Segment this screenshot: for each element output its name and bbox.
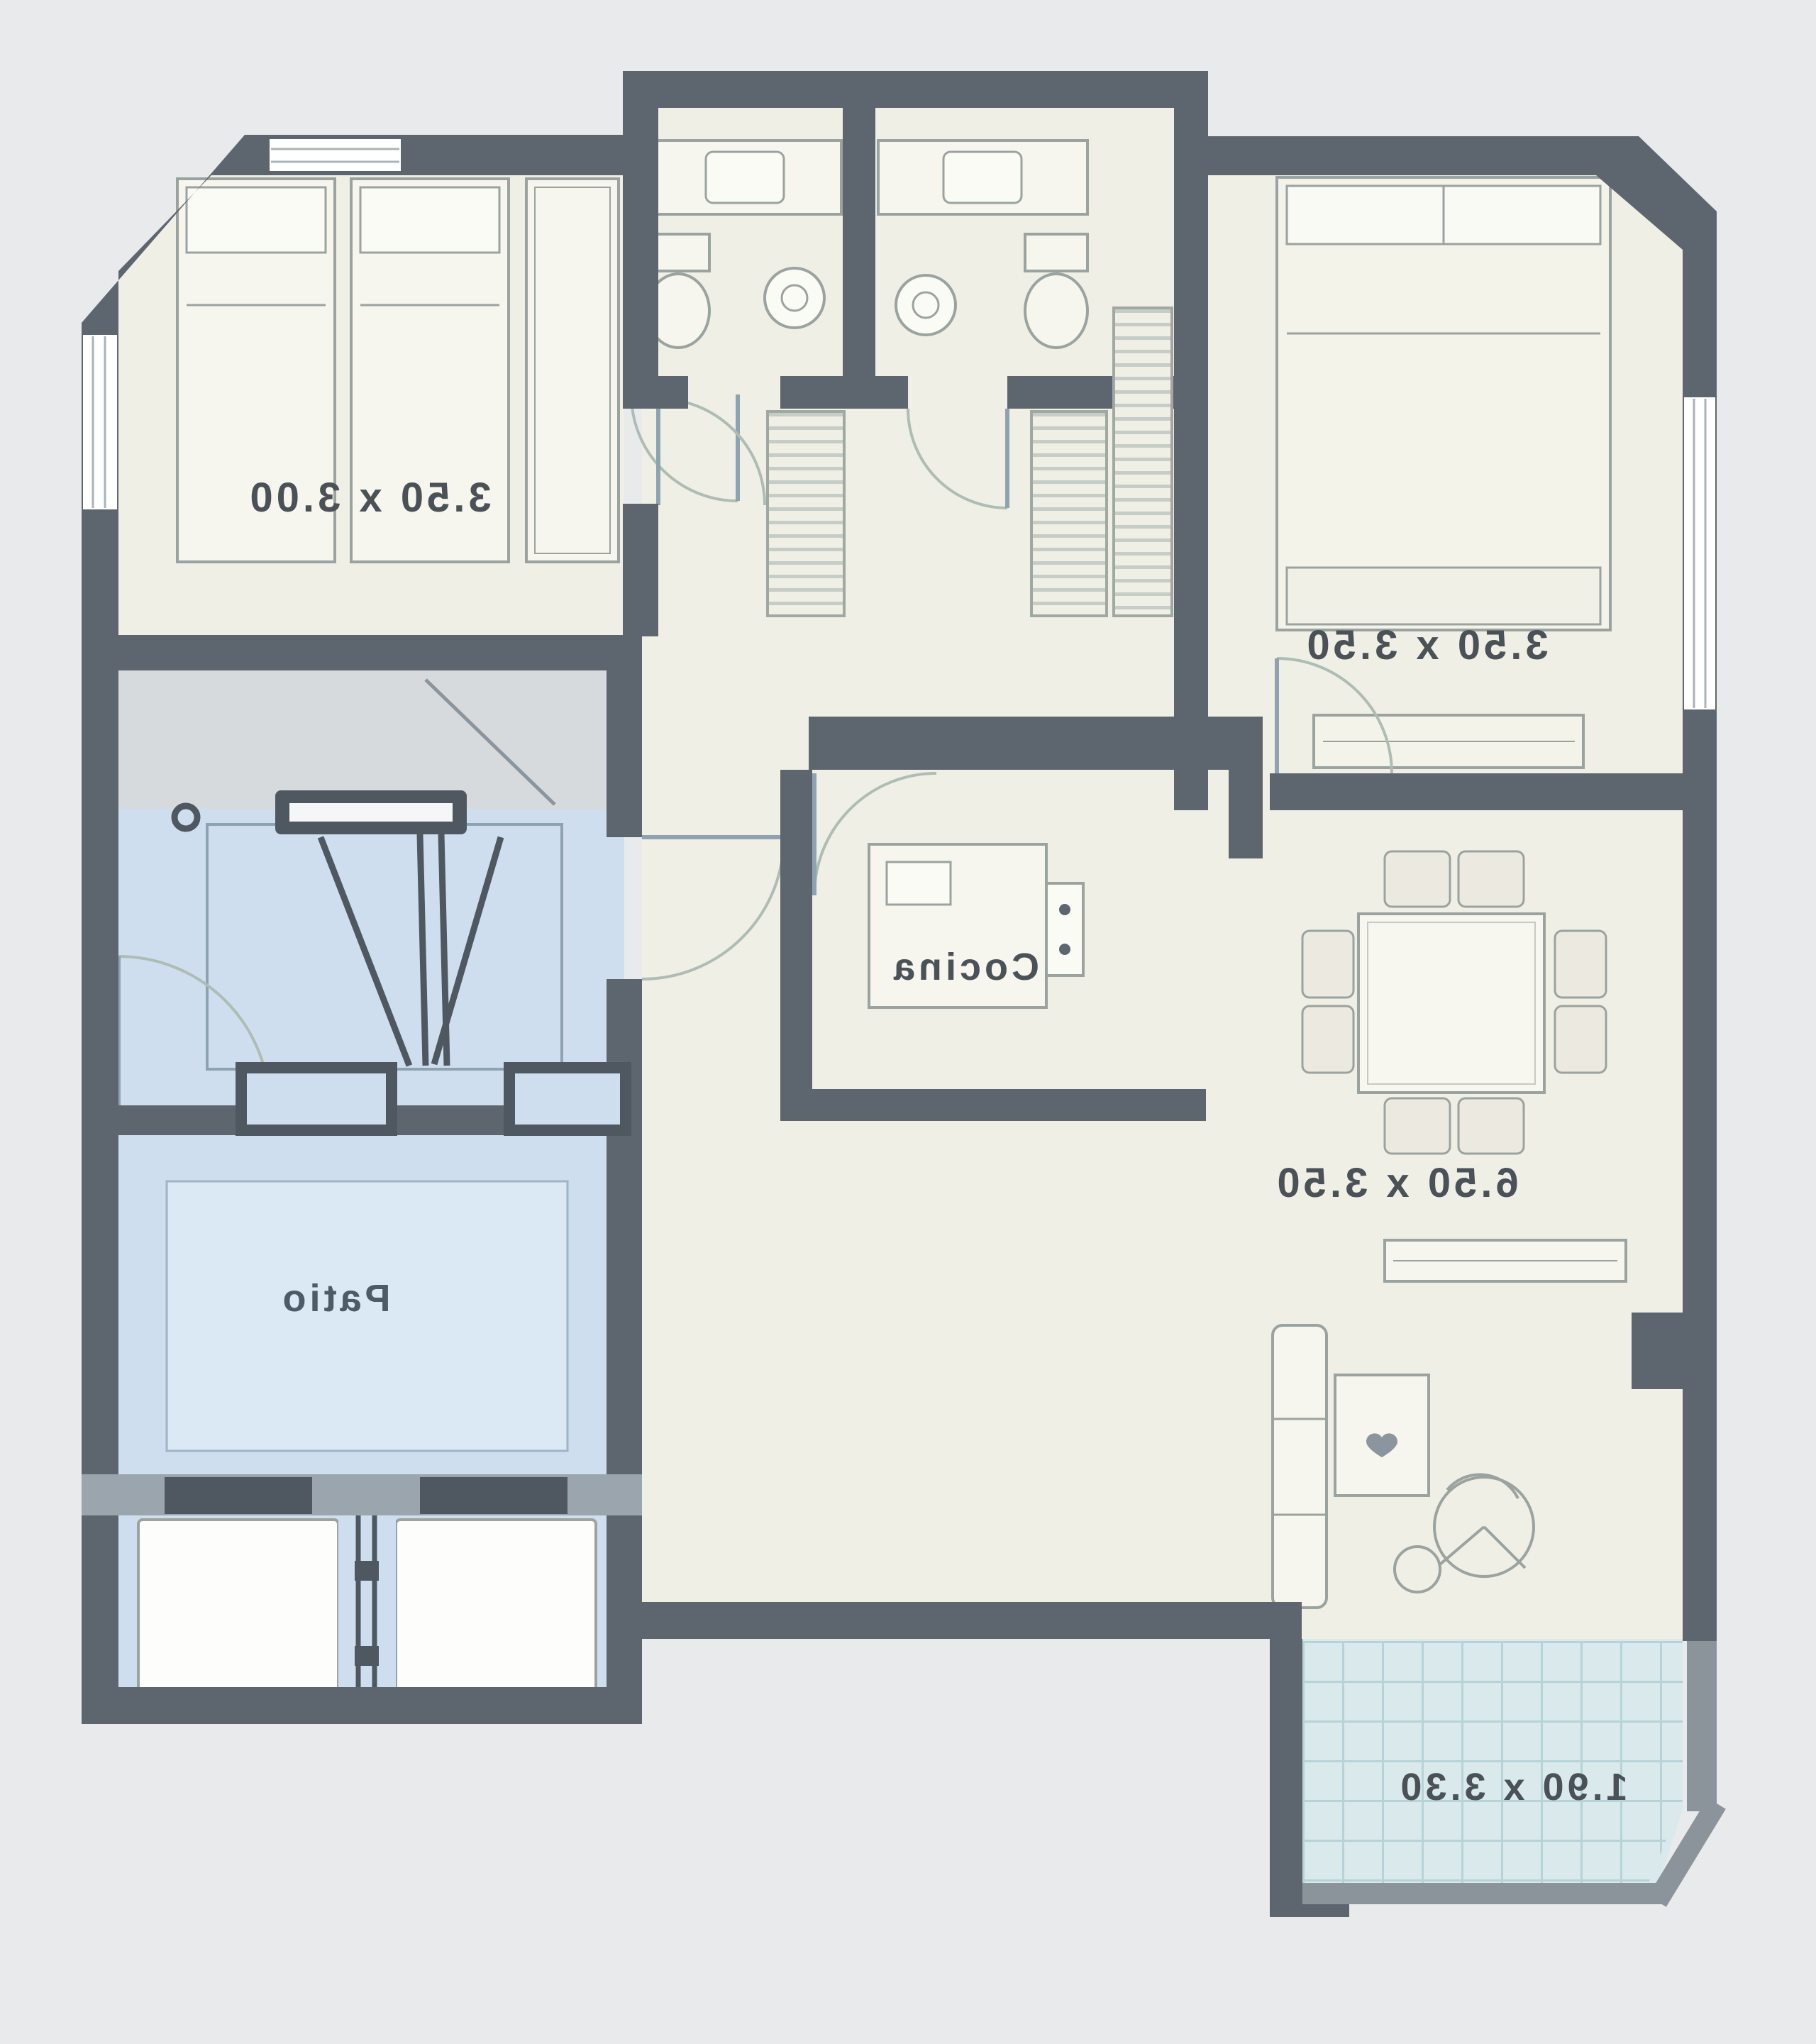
balcony-label: 1.90 x 3.30 (1346, 1765, 1679, 1809)
patio-label: Patio (228, 1276, 441, 1320)
wall-segment (780, 770, 812, 1121)
window-icon (1684, 397, 1715, 709)
wardrobe-closet (766, 410, 846, 617)
sofa-icon (1273, 1325, 1327, 1608)
wall-segment (642, 1602, 1302, 1639)
wall-segment (82, 635, 642, 670)
wardrobe-closet (1112, 306, 1173, 617)
wardrobe-icon (526, 179, 619, 562)
wall-segment (809, 717, 1263, 770)
wall-segment (1174, 71, 1208, 810)
bidet-icon (896, 275, 956, 335)
window-icon (270, 139, 401, 171)
double-bed-icon (1277, 177, 1610, 630)
dresser-icon (1314, 715, 1583, 768)
bedroom2-label: 3.50 x 3.50 (1259, 622, 1593, 669)
wall-segment (623, 376, 688, 409)
balcony-tiles (1302, 1641, 1683, 1883)
wall-segment (843, 108, 875, 389)
dining-table (1358, 914, 1544, 1093)
living-dining-label: 6.50 x 3.50 (1229, 1159, 1563, 1207)
kitchen-label: Cocina (823, 945, 1107, 989)
wall-segment (1229, 770, 1263, 858)
floor-plan-canvas: 3.50 x 3.00 3.50 x 3.50 Cocina 6.50 x 3.… (0, 0, 1816, 2044)
wall-segment (623, 108, 658, 399)
wall-segment (607, 670, 642, 837)
wall-segment (82, 635, 118, 1724)
wall-segment (1270, 773, 1717, 810)
window-icon (83, 335, 117, 509)
elevator-threshold (82, 1474, 642, 1515)
bedroom1-label: 3.50 x 3.00 (202, 474, 536, 521)
wall-segment (1683, 1387, 1717, 1641)
wall-segment (623, 504, 658, 636)
wall-segment (1632, 1313, 1717, 1389)
wardrobe-closet (1030, 410, 1108, 617)
wall-segment (780, 376, 908, 409)
wall-segment (780, 1089, 1206, 1121)
bidet-icon (765, 268, 824, 328)
sink-icon (878, 140, 1087, 214)
toilet-icon (1025, 234, 1087, 348)
wall-segment (1683, 810, 1717, 1387)
coffee-table-icon (1335, 1375, 1429, 1496)
sideboard-icon (1385, 1240, 1626, 1281)
shaft-floor (117, 670, 624, 809)
wall-segment (82, 1687, 642, 1724)
sink-icon (644, 140, 841, 214)
wall-segment (623, 71, 1208, 108)
